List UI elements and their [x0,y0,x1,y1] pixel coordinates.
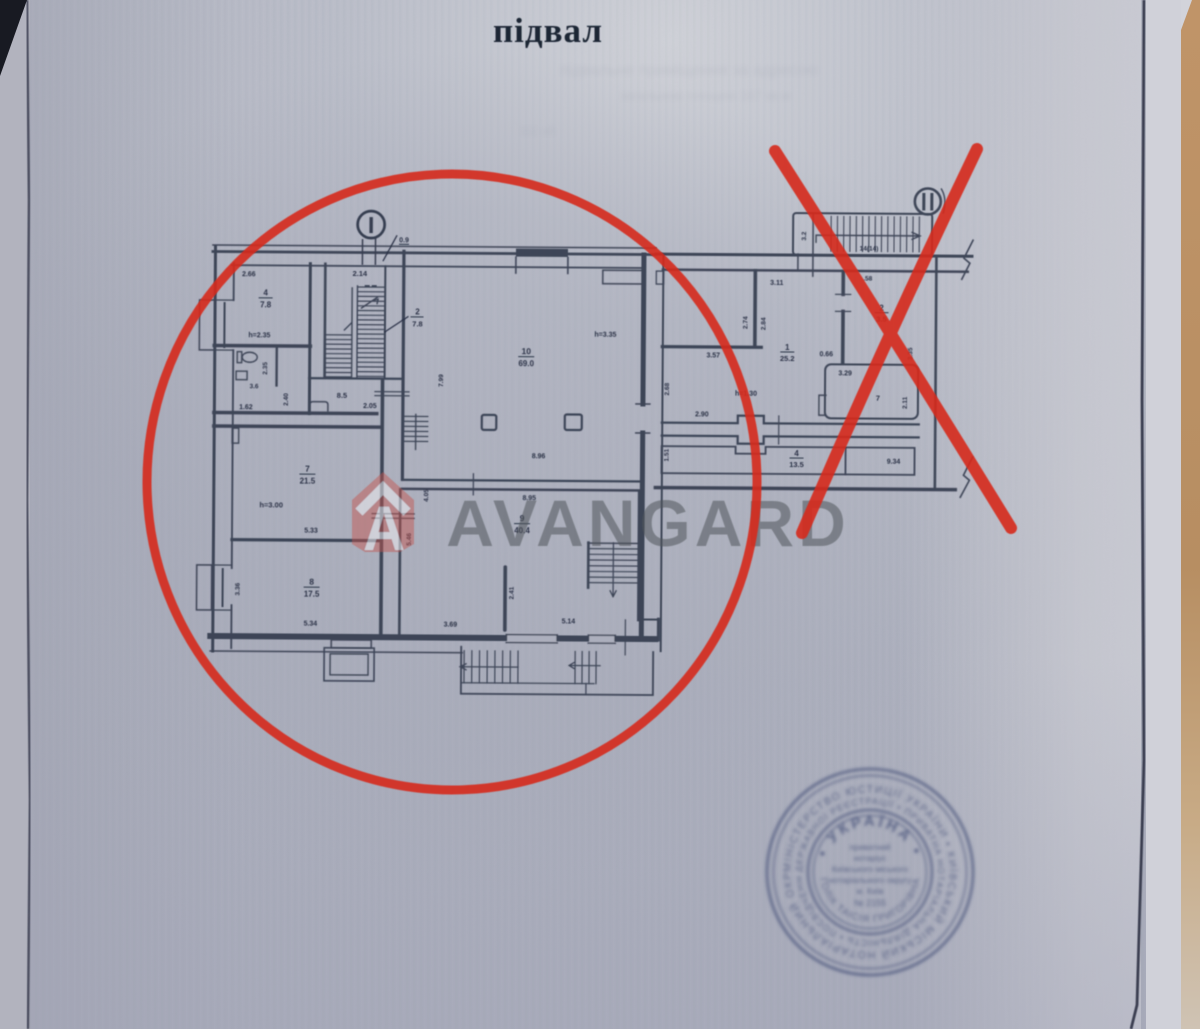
svg-text:69.0: 69.0 [518,359,534,368]
svg-text:7: 7 [876,394,880,403]
svg-text:2.84: 2.84 [760,317,767,330]
svg-text:2.40: 2.40 [283,393,290,406]
svg-text:A: A [363,493,405,564]
svg-text:21.5: 21.5 [300,477,316,486]
svg-text:2.35: 2.35 [262,362,269,375]
svg-text:17.5: 17.5 [304,590,320,599]
svg-text:4.05: 4.05 [423,489,430,502]
svg-text:3.11: 3.11 [770,280,783,287]
svg-text:5.14: 5.14 [562,618,576,625]
svg-text:9.34: 9.34 [887,459,901,466]
svg-text:8.5: 8.5 [337,391,348,400]
svg-text:приватний: приватний [849,842,890,852]
svg-text:1.62: 1.62 [239,404,253,411]
svg-text:2.74: 2.74 [742,316,749,329]
svg-text:8: 8 [309,577,314,587]
svg-text:2.05: 2.05 [363,403,377,410]
svg-text:Київського міського: Київського міського [832,864,909,874]
svg-text:нотаріус: нотаріус [854,853,888,863]
svg-text:AVANGARD: AVANGARD [446,486,850,560]
svg-text:7: 7 [305,464,310,474]
svg-text:0.9: 0.9 [399,237,409,244]
svg-text:4: 4 [794,449,799,458]
svg-text:2.66: 2.66 [242,271,256,278]
svg-text:13.5: 13.5 [789,460,804,469]
svg-text:2.41: 2.41 [509,586,516,599]
svg-text:3.57: 3.57 [706,352,720,359]
svg-text:1: 1 [785,343,790,352]
svg-text:5.34: 5.34 [304,621,318,628]
svg-text:4: 4 [263,288,268,297]
svg-text:7.99: 7.99 [438,374,445,387]
svg-text:0.66: 0.66 [819,351,833,358]
svg-text:7.8: 7.8 [260,300,272,309]
svg-text:підвал: підвал [493,11,603,50]
svg-text:2.14: 2.14 [352,269,367,278]
svg-text:нотаріального округу: нотаріального округу [829,875,912,885]
svg-text:14(14): 14(14) [860,246,879,253]
svg-text:111 об: 111 об [520,124,555,138]
svg-text:пiдвальне примiщення за адресо: пiдвальне примiщення за адресою [560,62,818,79]
svg-text:3.29: 3.29 [838,370,852,377]
svg-text:25.2: 25.2 [780,354,795,363]
svg-text:м. Київ: м. Київ [856,886,884,896]
svg-text:2: 2 [415,307,420,316]
svg-text:7.8: 7.8 [412,319,423,328]
svg-text:h=2.35: h=2.35 [248,332,270,339]
svg-text:№ 2155: № 2155 [854,898,886,908]
svg-text:h=3.35: h=3.35 [594,332,616,339]
svg-text:2.90: 2.90 [695,411,709,418]
svg-text:загальною площею 167 кв.м: загальною площею 167 кв.м [620,88,791,103]
svg-text:10: 10 [522,346,532,356]
svg-text:8.96: 8.96 [532,453,546,460]
svg-text:2.68: 2.68 [664,382,671,395]
svg-text:3.6: 3.6 [249,383,258,390]
svg-text:3.69: 3.69 [444,622,458,629]
svg-text:2.11: 2.11 [902,396,909,409]
svg-text:3.36: 3.36 [235,582,242,595]
svg-text:3.2: 3.2 [801,231,808,240]
svg-text:h=3.00: h=3.00 [259,500,283,509]
svg-text:1.51: 1.51 [664,448,671,461]
svg-text:5.33: 5.33 [304,528,318,535]
